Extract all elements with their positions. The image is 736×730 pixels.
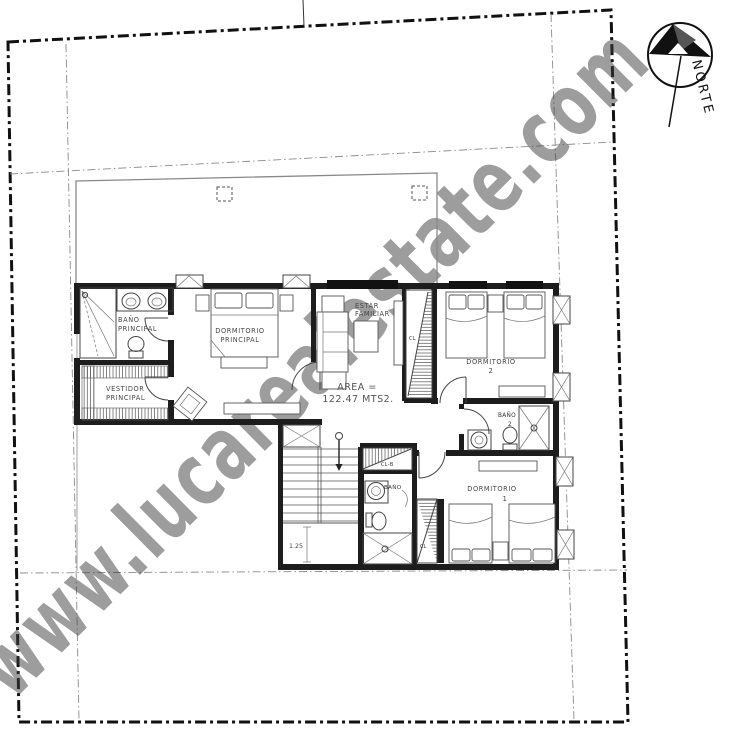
room-label: DORMITORIO [466,358,515,366]
room-label: ESTAR [355,302,379,310]
window-lintel [327,280,398,289]
room-bano-principal: BAÑO PRINCIPAL [80,288,173,358]
sink-icon [148,293,166,309]
room-label: PRINCIPAL [220,336,259,344]
area-label: AREA = [337,382,377,393]
room-dormitorio-2: DORMITORIO 2 [440,292,545,403]
stair-treads [283,447,358,523]
door-arc [419,452,445,478]
pillow [452,549,470,561]
dresser [499,386,545,397]
bench [221,357,267,368]
pillow [215,293,242,308]
pillow [468,295,484,309]
door-arc [145,377,168,400]
pillow [472,549,490,561]
door-arc [440,377,466,403]
room-label: FAMILIAR [355,310,390,318]
nightstand [493,542,508,560]
area-value: 122.47 MTS2. [322,394,393,405]
room-label: BAÑO [118,315,140,324]
room-label: 2 [489,367,494,375]
survey-tick [303,0,304,26]
room-bano-3: BAÑO [363,481,412,564]
pillow [526,295,542,309]
side-table [322,296,344,312]
room-label: BAÑO [384,484,402,491]
closet-label: CL [409,336,416,342]
nightstand [488,295,503,312]
room-vestidor-principal: VESTIDOR PRINCIPAL [82,366,168,420]
stair-direction-marker [336,433,343,440]
north-label: NORTE [688,58,716,117]
room-label: BAÑO [498,412,516,419]
sink-icon [368,483,385,500]
dresser [224,403,300,414]
floor-plan-page: www.lucarealestate.com [0,0,736,730]
pillow [533,549,552,561]
down-arrow-head [336,464,343,471]
pillow [246,293,273,308]
pillow [512,549,531,561]
closet-label: CL [420,544,427,550]
room-label: 2 [508,422,512,428]
column [217,187,232,201]
room-label: DORMITORIO [215,327,264,335]
closet-hall: CL [406,290,432,398]
dresser [479,461,537,471]
room-label: DORMITORIO [467,485,516,493]
column [412,186,427,200]
nightstand [280,295,293,311]
sink-icon [471,432,487,448]
stair-dimension: 1.25 [289,543,303,550]
closet-shelving [82,408,168,420]
room-label: VESTIDOR [106,385,144,393]
north-compass: NORTE [648,23,716,127]
toilet-icon [128,337,144,352]
sink-icon [122,293,140,309]
window-lintel [506,281,543,289]
window-lintel [449,281,487,289]
closet-shelving [82,366,168,378]
pillow [507,295,524,309]
room-bano-2: BAÑO 2 [464,406,549,450]
sofa [317,312,348,372]
closet-label: CL-B [381,462,394,468]
toilet-icon [503,427,517,443]
toilet-icon [372,512,386,530]
nightstand [196,295,209,311]
shelf [394,301,403,365]
room-label: PRINCIPAL [106,394,145,402]
pillow [449,295,466,309]
staircase: 1.25 [283,425,358,562]
closet-linen: CL-B [363,448,412,470]
room-label: PRINCIPAL [118,325,157,333]
coffee-table [354,321,378,352]
room-label: 1 [503,495,508,503]
